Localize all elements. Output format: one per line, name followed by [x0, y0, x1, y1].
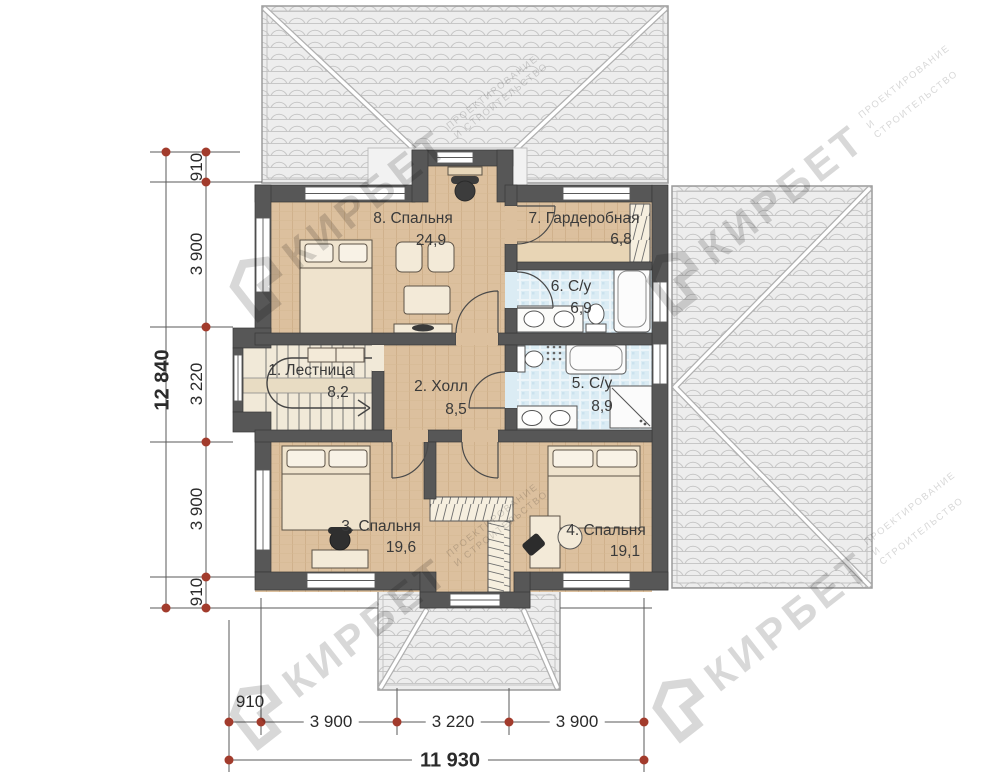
- tv-console-room8: [394, 324, 452, 333]
- room-label-bedroom4: 4. Спальня: [566, 522, 646, 540]
- window: [450, 594, 500, 606]
- dim-left-seg-4: 910: [187, 578, 207, 606]
- floor-plan-drawing: [0, 0, 1000, 779]
- wardrobe-room3: [430, 497, 513, 521]
- room-label-bath6: 6. С/у: [551, 278, 591, 296]
- room-area-stairs1: 8,2: [327, 384, 349, 402]
- window: [437, 152, 473, 163]
- floor-drain-dots: [547, 346, 562, 361]
- window: [256, 470, 270, 550]
- dim-left-total: 12 840: [152, 349, 175, 410]
- room-area-bedroom3: 19,6: [386, 539, 416, 557]
- dim-bottom-seg-2: 3 220: [426, 712, 481, 732]
- room-area-wardrobe7: 6,8: [610, 231, 632, 249]
- window: [307, 573, 375, 588]
- room-label-hall2: 2. Холл: [414, 378, 468, 396]
- room-area-bath6: 6,9: [570, 300, 592, 318]
- toilet-bowl: [525, 351, 543, 367]
- window: [234, 355, 242, 401]
- window: [653, 344, 667, 384]
- floor-plan-page: КИРБЕТ ПРОЕКТИРОВАНИЕ И СТРОИТЕЛЬСТВО КИ…: [0, 0, 1000, 779]
- stair-landing: [243, 378, 372, 393]
- window: [256, 218, 270, 292]
- dim-left-seg-1: 3 900: [187, 233, 207, 276]
- room-area-hall2: 8,5: [445, 401, 467, 419]
- dim-bottom-seg-1: 3 900: [304, 712, 359, 732]
- dim-left-seg-2: 3 220: [187, 363, 207, 406]
- roof-right: [672, 186, 872, 588]
- window: [563, 573, 630, 588]
- dim-bottom-seg-3: 3 900: [550, 712, 605, 732]
- toilet-tank: [517, 346, 525, 372]
- room-label-bedroom3: 3. Спальня: [341, 518, 421, 536]
- dim-bottom-seg-0: 910: [236, 692, 264, 712]
- dim-left-seg-3: 3 900: [187, 488, 207, 531]
- window: [305, 187, 405, 200]
- room-label-stairs1: 1. Лестница: [268, 362, 354, 380]
- room-label-bedroom8: 8. Спальня: [373, 210, 453, 228]
- dim-bottom-total: 11 930: [412, 750, 488, 773]
- room-label-bath5: 5. С/у: [572, 375, 612, 393]
- wardrobe-room4: [488, 521, 510, 592]
- coffee-table: [404, 286, 450, 314]
- room-area-bedroom8: 24,9: [416, 232, 446, 250]
- window: [653, 282, 667, 322]
- room-area-bath5: 8,9: [591, 398, 613, 416]
- toilet-tank: [586, 324, 606, 332]
- desk-room3: [312, 550, 368, 568]
- room-area-bedroom4: 19,1: [610, 543, 640, 561]
- bed-room4: [548, 446, 640, 528]
- dim-left-seg-0: 910: [187, 153, 207, 181]
- room-label-wardrobe7: 7. Гардеробная: [529, 210, 640, 228]
- window: [563, 187, 630, 200]
